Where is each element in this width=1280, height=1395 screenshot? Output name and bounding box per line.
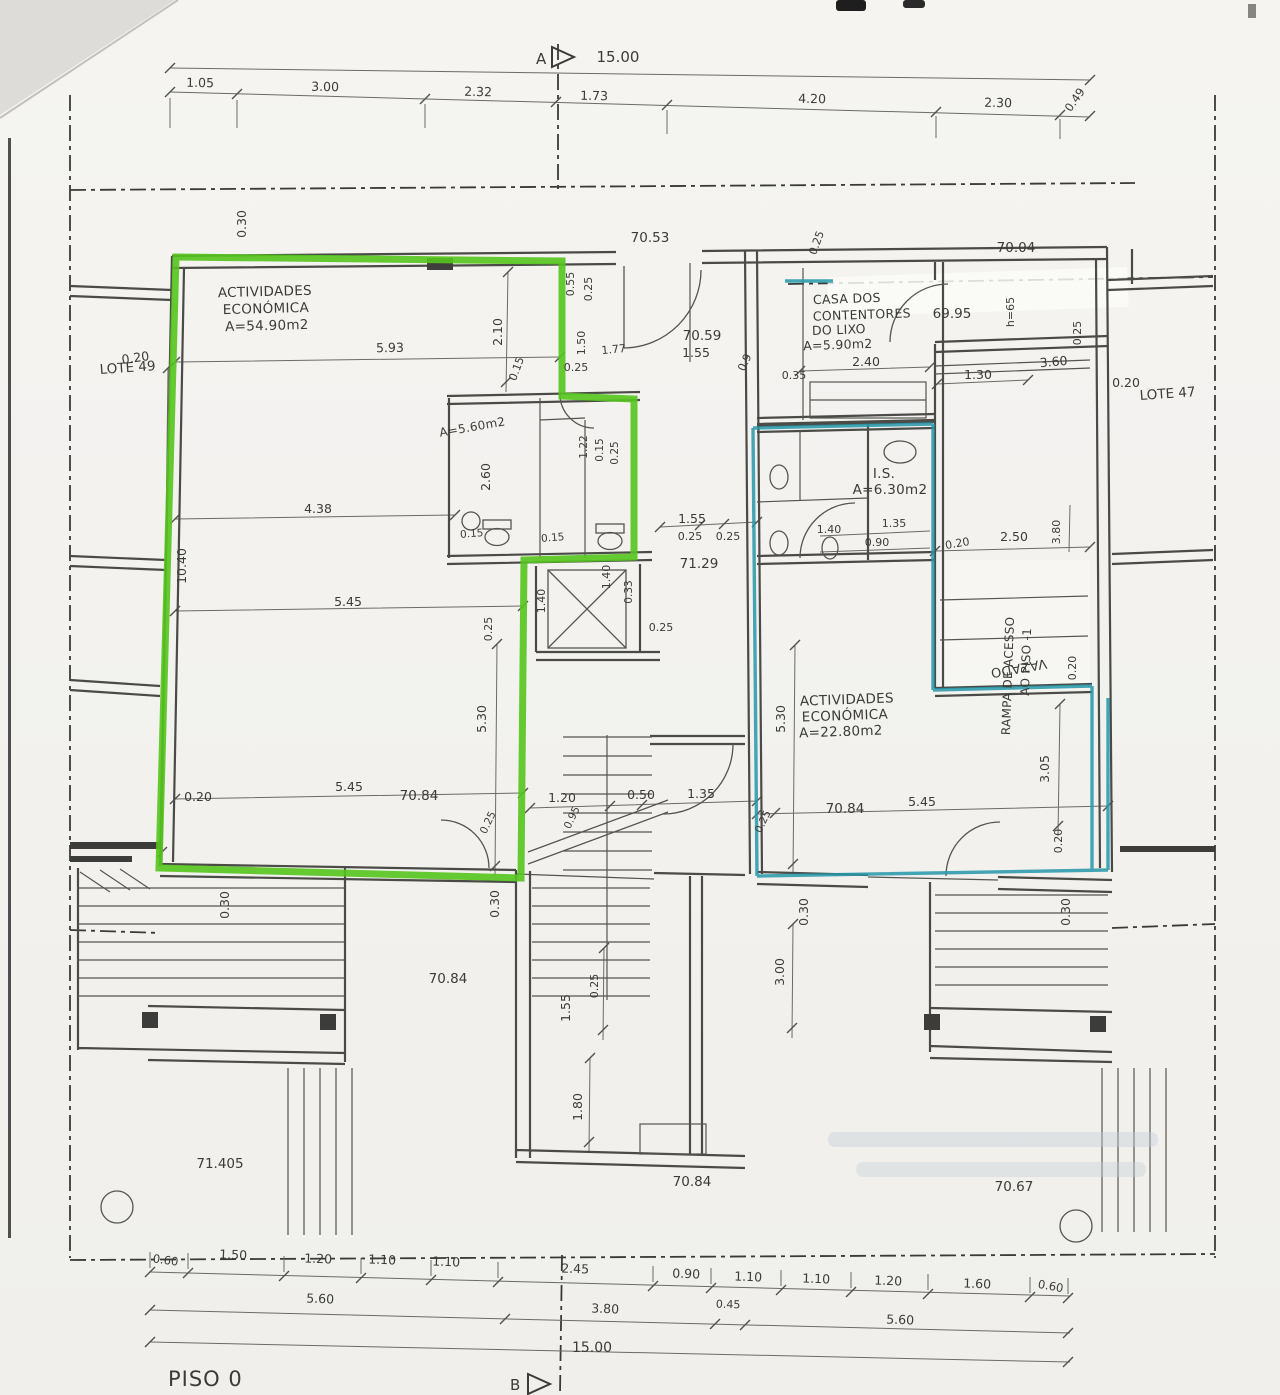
room-name: CASA DOS [813,290,881,307]
dim-label: h=65 [1004,297,1017,327]
right-porch-steps [935,895,1108,985]
room-area: A=22.80m2 [799,723,883,742]
level-value: 71.405 [196,1156,243,1172]
dim-label: 1.35 [882,517,907,530]
dim-label: 0.55 [564,272,577,297]
section-arrow-a [552,47,574,67]
dim-label: 5.45 [908,794,936,809]
total-width-bottom: 15.00 [572,1340,612,1356]
dim-label: 3.05 [1037,755,1052,783]
dim-label: 0.20 [944,535,970,552]
dim-label: 1.10 [734,1269,762,1285]
section-markers [528,47,574,1394]
dim-label: 1.73 [580,88,608,103]
labels: A B 15.00 15.00 PISO 0 LOTE 49 LOTE 47 1… [99,48,1196,1394]
lot-right-label: LOTE 47 [1139,384,1196,404]
left-porch-bands [148,1006,345,1064]
dim-label: 5.60 [306,1291,334,1307]
room-label-is: I.S. A=6.30m2 [853,466,928,498]
dim-label: 3.00 [311,79,339,94]
dim-label: 1.80 [570,1093,585,1121]
toilet-left-a [485,529,509,546]
dim-label: 1.05 [186,75,214,90]
level-value: 70.04 [997,240,1036,256]
dim-label: 5.93 [376,340,404,355]
scanned-floor-plan-page: A B 15.00 15.00 PISO 0 LOTE 49 LOTE 47 1… [0,0,1280,1395]
floor-plan-drawing: A B 15.00 15.00 PISO 0 LOTE 49 LOTE 47 1… [0,0,1280,1395]
dim-label: 1.20 [304,1251,332,1267]
dim-label: 0.25 [716,530,741,543]
page-curl-shadow [0,0,175,115]
dim-label: 0.25 [1071,321,1084,346]
dim-top-total [170,68,1090,80]
section-lines-right [1102,1068,1166,1232]
column-right-a [924,1014,940,1030]
dim-label: 1.40 [535,589,548,614]
dim-label: 0.35 [782,369,807,382]
dim-label: 0.9 [735,352,754,373]
dim-label: 0.25 [564,361,589,374]
dim-label: 1.50 [575,331,588,356]
section-lines-left [288,1068,352,1235]
dim-label: 0.25 [806,229,827,256]
column-left-b [320,1014,336,1030]
dim-label: 0.25 [588,974,601,999]
left-porch-steps [78,888,345,996]
dim-label: 1.10 [368,1252,396,1268]
dim-label: 1.50 [219,1247,247,1263]
section-label-a: A [536,50,547,68]
dim-label: 0.30 [217,891,232,919]
top-edge-blob2 [903,0,925,8]
wall-lower-corridor [516,870,745,1168]
sink-right [884,441,916,463]
floor-title: PISO 0 [168,1367,243,1391]
dim-label: 0.90 [865,536,890,549]
toilet-right-b [770,531,788,555]
right-bar [1120,846,1215,852]
dim-label: 0.25 [582,277,595,302]
dim-label: 1.20 [548,790,576,805]
top-edge-blob [836,0,866,11]
dim-label: 1.55 [682,345,710,360]
wall-stair-top [650,736,745,744]
level-value: 70.84 [826,801,865,817]
room-area: A=54.90m2 [225,317,309,335]
left-bar-b [70,856,132,862]
boundary-top [70,183,1135,190]
dim-label: 0.30 [796,898,811,926]
dim-label: 5.30 [773,705,788,733]
dim-label: 1.40 [600,565,613,590]
dim-label: 0.60 [152,1251,179,1268]
wall-is-partitions [757,430,868,502]
dim-label: 2.32 [464,84,492,99]
dim-label: 2.30 [984,95,1012,110]
dim-label: 3.00 [772,958,787,986]
dim-label: 0.30 [1058,898,1073,926]
level-value: 70.84 [400,788,439,804]
dim-label: 1.60 [963,1276,991,1292]
dim-label: 0.95 [562,805,583,831]
ghost-bar-b [856,1162,1146,1177]
level-value: 70.84 [429,971,468,987]
dim-label: 0.33 [623,580,635,603]
dim-label: 0.60 [1037,1277,1065,1295]
dim-label: 0.90 [672,1266,700,1282]
dim-label: 2.40 [852,354,880,369]
dim-label: 0.50 [627,787,655,802]
toilet-left-b-tank [596,524,624,533]
dim-label: 0.20 [1052,829,1065,854]
dim-label: 1.77 [601,342,627,357]
dim-label: 0.45 [716,1298,741,1312]
dim-label: 1.30 [964,367,992,382]
dim-label: 0.25 [649,621,674,634]
corner-mark [1248,4,1256,18]
dim-label: 0.15 [506,355,527,382]
dim-label: 0.25 [482,617,495,642]
dim-label: 0.30 [234,210,249,238]
room-name: ACTIVIDADES [218,283,312,301]
toilet-left-b [598,533,622,550]
dim-label: 0.15 [460,527,484,541]
dim-label: 1.35 [687,786,715,801]
room-area: A=5.90m2 [803,336,873,353]
rightunit-door-arc [946,822,1000,876]
dim-label: 1.10 [802,1271,830,1287]
scan-ghost-text [828,1132,1158,1177]
dim-label: 1.55 [558,994,573,1022]
toilet-left-a-tank [483,520,511,529]
stair-treads [532,737,652,996]
column-left-a [142,1012,158,1028]
dim-label: 0.30 [487,890,502,918]
right-porch-bands [930,1008,1112,1062]
dim-label: 10.40 [174,548,189,584]
dim-label: 4.20 [798,91,826,106]
dim-label: 0.15 [541,531,565,545]
dim-label: 3.80 [1050,520,1063,545]
dim-label: 4.38 [304,501,332,516]
manhole-right [1060,1210,1092,1242]
wall-elevator-shaft [536,564,660,660]
room-label-right-unit: ACTIVIDADES ECONÓMICA A=22.80m2 [799,690,894,741]
room-area: A=6.30m2 [853,482,928,498]
level-value: 70.67 [995,1179,1034,1195]
level-value: 70.84 [673,1174,712,1190]
dim-bottom-row1 [150,1272,1070,1296]
dim-label: 2.50 [1000,529,1028,544]
dim-label: 0.20 [1112,375,1140,390]
toilet-right-a [770,465,788,489]
dim-label: 5.45 [334,594,362,609]
dim-label: 1.10 [432,1254,460,1270]
room-label-left-unit: ACTIVIDADES ECONÓMICA A=54.90m2 [218,283,312,335]
section-line-b [560,1255,562,1395]
dim-label: 2.45 [561,1261,589,1277]
wall-left-porch [78,868,345,1062]
boundary-stub-right [1112,924,1215,928]
bidet-right [822,537,838,559]
dim-label: 1.22 [578,435,590,458]
dim-label: 0.25 [609,441,621,464]
dim-label: 3.60 [1039,353,1068,370]
level-value: 69.95 [933,306,972,322]
lower-duct [640,1124,706,1154]
boundary-stub-left [70,930,160,933]
dim-label: 5.60 [886,1312,914,1328]
dim-label: 3.80 [591,1301,619,1317]
dim-label: 0.15 [594,438,606,461]
section-label-b: B [510,1376,520,1394]
dim-top-chain [170,92,1090,117]
walls [70,247,1215,1235]
elevator-cross [548,570,626,648]
ghost-bar-a [828,1132,1158,1147]
dim-label: 0.25 [678,530,703,543]
dim-label: 5.30 [474,705,489,733]
dim-label: 1.20 [874,1273,902,1289]
room-name: ECONÓMICA [222,298,309,318]
dim-label: 2.60 [478,463,493,491]
manhole-left [101,1191,133,1223]
column-right-b [1090,1016,1106,1032]
dim-label: 0.49 [1062,85,1088,114]
section-arrow-b [528,1374,550,1394]
dim-label: 1.55 [678,511,706,526]
dim-label: 0.20 [184,789,212,804]
dim-label: 2.10 [490,318,505,346]
total-width-top: 15.00 [597,48,640,66]
dim-label: 1.40 [817,523,842,536]
dim-label: 5.45 [335,779,363,794]
left-bar-a [70,842,162,849]
level-value: 70.53 [631,230,670,246]
level-value: 71.29 [680,556,719,572]
level-value: 70.59 [683,328,722,344]
room-name: I.S. [873,466,895,482]
left-edge-line [8,138,11,1238]
dim-label: 0.20 [1066,656,1079,681]
